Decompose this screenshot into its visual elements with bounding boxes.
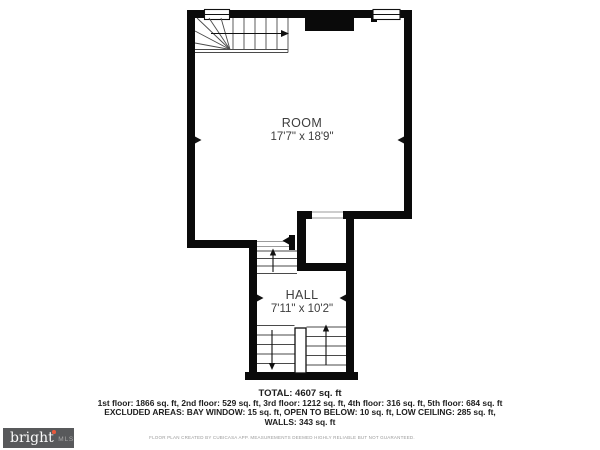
hall-dimensions: 7'11" x 10'2": [242, 303, 362, 315]
window-icon-top-left: [205, 10, 230, 20]
hall-lower-stairs-down-arrow: [269, 330, 275, 370]
walls: [187, 10, 412, 380]
hall-name: HALL: [242, 288, 362, 302]
dim-marker-room-right: [398, 137, 405, 144]
wall-chimney-block: [305, 18, 354, 31]
room-name: ROOM: [242, 116, 362, 130]
stair-railing: [295, 328, 306, 373]
dim-marker-room-left: [195, 137, 202, 144]
wall-left: [187, 10, 195, 248]
wall-room-bottom-left: [187, 240, 257, 248]
hall-label: HALL 7'11" x 10'2": [242, 288, 362, 315]
room-label: ROOM 17'7" x 18'9": [242, 116, 362, 143]
summary-walls: WALLS: 343 sq. ft: [0, 418, 600, 427]
logo-accent-dot-icon: [52, 430, 55, 434]
floor-plan-page: ROOM 17'7" x 18'9" HALL 7'11" x 10'2" TO…: [0, 0, 600, 450]
wall-closet-left: [297, 211, 306, 271]
wall-room-bottom-right: [343, 211, 412, 219]
hall-lower-stairs-up-arrow: [323, 325, 329, 366]
floor-plan-drawing: [0, 0, 600, 450]
logo-suffix-text: MLS: [58, 436, 74, 443]
area-summary: TOTAL: 4607 sq. ft 1st floor: 1866 sq. f…: [0, 388, 600, 427]
wall-right: [404, 10, 412, 219]
door-marker: [283, 235, 296, 250]
wall-closet-bottom: [297, 263, 354, 271]
hall-upper-stairs-arrow: [270, 249, 276, 273]
bright-mls-logo: brightMLS: [3, 428, 74, 448]
disclaimer-text: FLOOR PLAN CREATED BY CUBICASA APP. MEAS…: [0, 435, 564, 440]
logo-brand-text: bright: [10, 431, 54, 445]
room-dimensions: 17'7" x 18'9": [242, 131, 362, 143]
winder-stairs: [195, 18, 288, 53]
window-icon-top-right: [373, 10, 400, 20]
hall-upper-stairs: [257, 251, 297, 274]
hall-lower-stairs-left-flight: [257, 326, 295, 364]
